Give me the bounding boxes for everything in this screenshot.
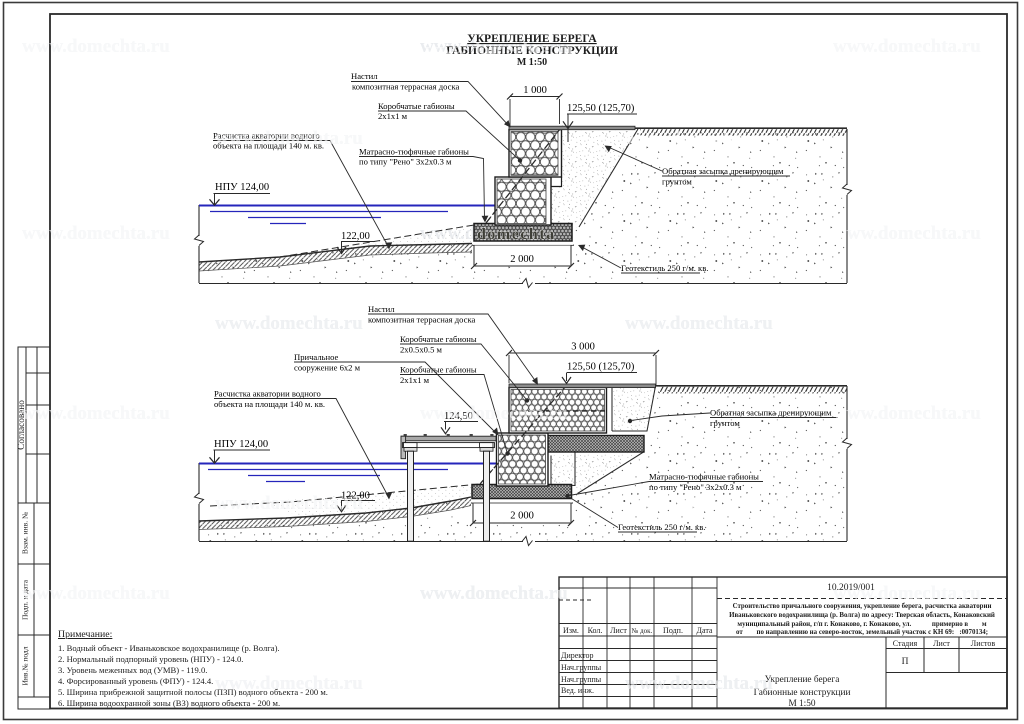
svg-text:по типу "Рено" 3х2х0.3 м: по типу "Рено" 3х2х0.3 м — [359, 157, 452, 167]
svg-text:Инв.№ подл: Инв.№ подл — [21, 646, 30, 685]
svg-text:122,00: 122,00 — [341, 231, 370, 242]
svg-text:Коробчатые габионы: Коробчатые габионы — [400, 334, 477, 344]
svg-text:2х0.5х0.5 м: 2х0.5х0.5 м — [400, 345, 443, 355]
svg-text:www.domechta.ru: www.domechta.ru — [215, 128, 363, 149]
svg-text:www.domechta.ru: www.domechta.ru — [22, 403, 170, 424]
svg-text:муниципальный район, г/п г. Ко: муниципальный район, г/п г. Конаково, г.… — [737, 621, 986, 628]
svg-text:2 000: 2 000 — [510, 511, 534, 522]
svg-text:125,50 (125,70): 125,50 (125,70) — [567, 103, 635, 114]
svg-text:Вед. инж.: Вед. инж. — [561, 686, 594, 695]
svg-text:Лист: Лист — [933, 639, 950, 648]
svg-text:НПУ 124,00: НПУ 124,00 — [215, 182, 269, 193]
svg-text:Строительство причального соор: Строительство причального сооружения, ук… — [733, 603, 992, 610]
svg-text:Укрепление берега: Укрепление берега — [765, 674, 840, 685]
svg-text:www.domechta.ru: www.domechta.ru — [625, 673, 773, 694]
svg-text:М 1:50: М 1:50 — [788, 699, 815, 709]
svg-text:Лист: Лист — [610, 626, 627, 635]
svg-text:www.domechta.ru: www.domechta.ru — [22, 583, 170, 604]
svg-text:Нач.группы: Нач.группы — [561, 675, 602, 684]
svg-text:www.domechta.ru: www.domechta.ru — [420, 403, 568, 424]
svg-text:Примечание:: Примечание: — [58, 629, 112, 640]
svg-text:Коробчатые габионы: Коробчатые габионы — [378, 101, 455, 111]
svg-text:www.domechta.ru: www.domechta.ru — [215, 673, 363, 694]
svg-text:Обратная засыпка дренирующим: Обратная засыпка дренирующим — [710, 408, 832, 418]
svg-text:www.domechta.ru: www.domechta.ru — [625, 313, 773, 334]
svg-text:www.domechta.ru: www.domechta.ru — [22, 223, 170, 244]
svg-text:Настил: Настил — [368, 304, 395, 314]
svg-text:композитная террасная доска: композитная террасная доска — [352, 82, 460, 92]
svg-text:грунтом: грунтом — [710, 418, 740, 428]
svg-text:композитная террасная доска: композитная террасная доска — [368, 315, 476, 325]
svg-text:1 000: 1 000 — [523, 85, 547, 96]
svg-text:domechta: domechta — [477, 226, 556, 243]
svg-text:Изм.: Изм. — [563, 626, 579, 635]
svg-text:3 000: 3 000 — [571, 342, 595, 353]
svg-text:Причальное: Причальное — [294, 352, 339, 362]
svg-text:Коробчатые габионы: Коробчатые габионы — [400, 365, 477, 375]
svg-text:3. Уровень меженных вод (УМВ): 3. Уровень меженных вод (УМВ) - 119.0. — [58, 665, 207, 675]
svg-text:www.domechta.ru: www.domechta.ru — [420, 583, 568, 604]
svg-text:Стадия: Стадия — [893, 639, 918, 648]
svg-text:по типу "Рено" 3х2х0.3 м: по типу "Рено" 3х2х0.3 м — [649, 482, 742, 492]
svg-text:Матрасно-тюфячные габионы: Матрасно-тюфячные габионы — [649, 472, 759, 482]
svg-text:1. Водный объект - Иваньковско: 1. Водный объект - Иваньковское водохран… — [58, 643, 280, 653]
svg-text:www.domechta.ru: www.domechta.ru — [215, 493, 363, 514]
svg-text:П: П — [902, 657, 909, 667]
svg-text:Настил: Настил — [351, 71, 378, 81]
svg-text:www.domechta.ru: www.domechta.ru — [833, 583, 981, 604]
svg-text:Нач.группы: Нач.группы — [561, 663, 602, 672]
svg-text:Иваньковского водохранилища (р: Иваньковского водохранилища (р. Волга) п… — [729, 612, 995, 619]
svg-text:Взам. инв. №: Взам. инв. № — [21, 512, 30, 554]
svg-text:Расчистка акватории водного: Расчистка акватории водного — [214, 389, 321, 399]
svg-text:www.domechta.ru: www.domechta.ru — [22, 36, 170, 57]
svg-text:от по направлению на се: от по направлению на северо-восток, земе… — [736, 629, 988, 636]
svg-text:www.domechta.ru: www.domechta.ru — [625, 493, 773, 514]
svg-text:грунтом: грунтом — [662, 177, 692, 187]
svg-text:125,50 (125,70): 125,50 (125,70) — [567, 362, 635, 373]
svg-text:сооружение 6х2 м: сооружение 6х2 м — [294, 363, 361, 373]
svg-text:2х1х1 м: 2х1х1 м — [400, 375, 430, 385]
svg-text:2. Нормальный подпорный уровен: 2. Нормальный подпорный уровень (НПУ) - … — [58, 654, 243, 664]
svg-text:www.domechta.ru: www.domechta.ru — [833, 223, 981, 244]
svg-text:Геотекстиль 250 г/м. кв.: Геотекстиль 250 г/м. кв. — [618, 522, 705, 532]
svg-text:www.domechta.ru: www.domechta.ru — [425, 40, 573, 61]
svg-text:Подп.: Подп. — [663, 626, 683, 635]
svg-text:www.domechta.ru: www.domechta.ru — [215, 313, 363, 334]
svg-text:Листов: Листов — [971, 639, 996, 648]
svg-text:№ док.: № док. — [632, 627, 653, 635]
svg-text:Директор: Директор — [561, 651, 593, 660]
svg-text:www.domechta.ru: www.domechta.ru — [833, 403, 981, 424]
svg-text:НПУ 124,00: НПУ 124,00 — [214, 439, 268, 450]
svg-text:2х1х1 м: 2х1х1 м — [378, 111, 408, 121]
svg-text:2 000: 2 000 — [510, 254, 534, 265]
svg-text:Дата: Дата — [697, 626, 713, 635]
svg-text:Обратная засыпка дренирующим: Обратная засыпка дренирующим — [662, 166, 784, 176]
svg-text:Матрасно-тюфячные габионы: Матрасно-тюфячные габионы — [359, 147, 469, 157]
svg-text:4. Форсированный уровень (ФПУ): 4. Форсированный уровень (ФПУ) - 124.4. — [58, 676, 213, 686]
svg-text:6. Ширина водоохранной зоны (В: 6. Ширина водоохранной зоны (ВЗ) водного… — [58, 698, 280, 708]
svg-text:www.domechta.ru: www.domechta.ru — [833, 36, 981, 57]
svg-text:www.domechta.ru: www.domechta.ru — [625, 128, 773, 149]
svg-text:Геотекстиль 250 г/м. кв.: Геотекстиль 250 г/м. кв. — [621, 263, 708, 273]
svg-text:Кол.: Кол. — [588, 626, 603, 635]
svg-text:объекта на площади 140 м. кв.: объекта на площади 140 м. кв. — [214, 399, 325, 409]
